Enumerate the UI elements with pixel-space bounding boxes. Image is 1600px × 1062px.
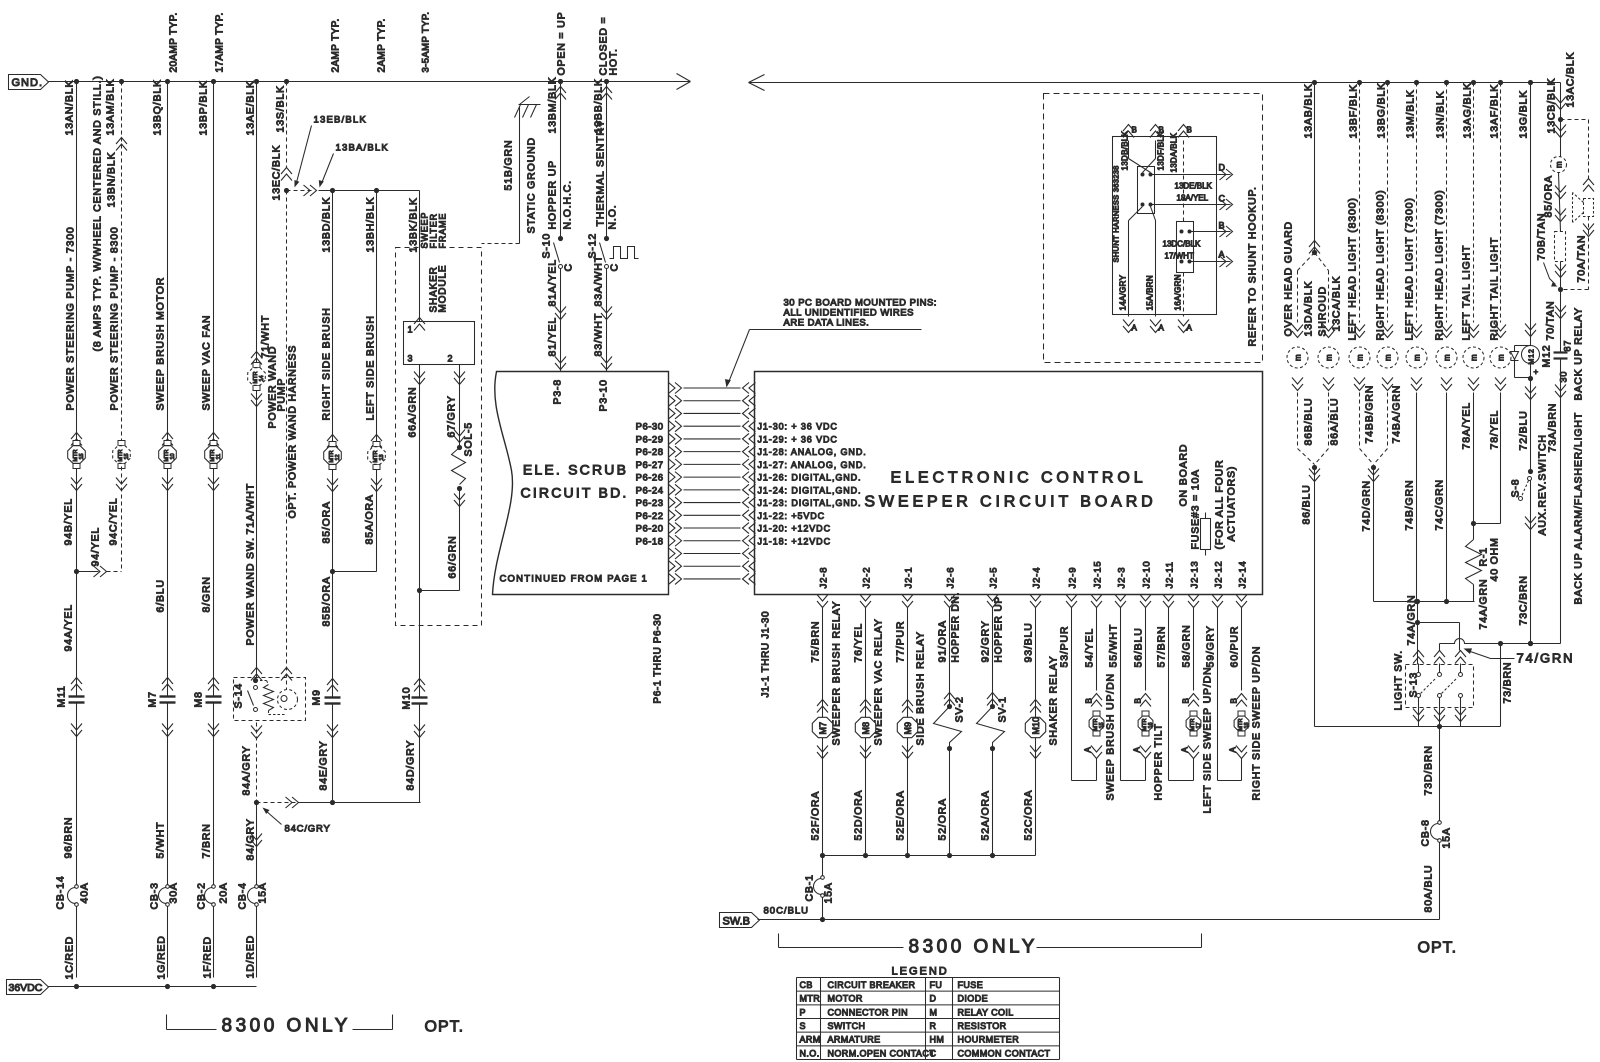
svg-text:J1-23: DIGITAL,GND.: J1-23: DIGITAL,GND. — [758, 498, 862, 508]
svg-text:m: m — [1384, 354, 1393, 361]
svg-text:13DB/BLK: 13DB/BLK — [1121, 130, 1130, 170]
svg-text:13N/BLK: 13N/BLK — [1435, 91, 1447, 139]
svg-text:CB-2: CB-2 — [196, 882, 208, 909]
svg-text:B: B — [1132, 126, 1137, 135]
svg-text:73D/BRN: 73D/BRN — [1423, 745, 1435, 795]
svg-text:13DF/BLK: 13DF/BLK — [1157, 131, 1166, 171]
svg-text:SOL-5: SOL-5 — [463, 422, 475, 457]
svg-text:74BA/GRN: 74BA/GRN — [1391, 385, 1403, 444]
svg-text:S-14: S-14 — [233, 683, 245, 709]
svg-text:A: A — [1219, 250, 1225, 260]
svg-text:15A: 15A — [257, 882, 269, 903]
svg-text:P6-18: P6-18 — [636, 536, 664, 547]
svg-text:(FOR ALL FOUR: (FOR ALL FOUR — [1214, 459, 1226, 549]
svg-text:13BG/BLK: 13BG/BLK — [1376, 82, 1388, 138]
svg-text:M7: M7 — [818, 722, 828, 735]
svg-text:C: C — [930, 1048, 937, 1058]
svg-text:56/BLU: 56/BLU — [1133, 627, 1145, 667]
svg-text:B: B — [1219, 221, 1225, 231]
svg-text:81A/YEL: 81A/YEL — [547, 259, 559, 306]
svg-text:A: A — [1187, 324, 1193, 333]
svg-text:RIGHT SIDE SWEEP UP/DN: RIGHT SIDE SWEEP UP/DN — [1251, 646, 1263, 801]
svg-text:HOPPER UP: HOPPER UP — [994, 596, 1005, 663]
svg-text:J1-1 THRU J1-30: J1-1 THRU J1-30 — [761, 611, 772, 698]
svg-text:13DC/BLK: 13DC/BLK — [1163, 240, 1201, 249]
svg-text:13DE/BLK: 13DE/BLK — [1175, 182, 1213, 191]
svg-text:+: + — [1534, 368, 1539, 377]
svg-text:NORM.OPEN CONTACT: NORM.OPEN CONTACT — [828, 1048, 936, 1058]
svg-text:R: R — [930, 1021, 937, 1031]
svg-text:16A/GRN: 16A/GRN — [1174, 274, 1183, 310]
svg-text:13EB/BLK: 13EB/BLK — [314, 115, 367, 126]
svg-text:J2-3: J2-3 — [1117, 567, 1128, 589]
svg-text:CONNECTOR PIN: CONNECTOR PIN — [828, 1007, 909, 1017]
svg-text:80C/BLU: 80C/BLU — [764, 906, 810, 917]
svg-text:P: P — [800, 1007, 806, 1017]
svg-text:30A: 30A — [168, 882, 180, 903]
svg-text:J1-29: + 36 VDC: J1-29: + 36 VDC — [758, 434, 838, 444]
svg-text:78A/YEL: 78A/YEL — [1461, 402, 1473, 449]
svg-text:B: B — [1230, 698, 1239, 703]
svg-text:OVER HEAD GUARD: OVER HEAD GUARD — [1283, 221, 1295, 336]
svg-text:70/TAN: 70/TAN — [1545, 301, 1557, 341]
svg-text:HM: HM — [930, 1035, 945, 1045]
svg-text:C: C — [563, 263, 575, 271]
svg-text:J2-2: J2-2 — [862, 567, 873, 589]
svg-text:m: m — [1325, 354, 1334, 361]
svg-text:18: 18 — [1244, 722, 1250, 728]
svg-text:S-10: S-10 — [541, 233, 553, 259]
svg-text:D: D — [930, 994, 937, 1004]
svg-text:13AG/BLK: 13AG/BLK — [1462, 82, 1474, 138]
svg-text:m: m — [1443, 354, 1452, 361]
svg-text:POWER STEERING PUMP - 7300: POWER STEERING PUMP - 7300 — [65, 226, 77, 410]
svg-text:13BK/BLK: 13BK/BLK — [408, 197, 420, 252]
svg-text:OPEN = UP: OPEN = UP — [556, 12, 568, 76]
svg-text:CB-14: CB-14 — [55, 875, 67, 909]
svg-text:93/BLU: 93/BLU — [1023, 622, 1035, 662]
svg-text:15A: 15A — [823, 882, 835, 903]
svg-text:ARMATURE: ARMATURE — [828, 1035, 881, 1045]
svg-text:HOT.: HOT. — [608, 48, 620, 75]
svg-text:FU: FU — [930, 980, 943, 990]
svg-text:13BA/BLK: 13BA/BLK — [336, 143, 389, 154]
svg-text:15: 15 — [124, 453, 130, 459]
svg-text:92/GRY: 92/GRY — [980, 620, 992, 662]
svg-text:m: m — [1413, 354, 1422, 361]
svg-text:OPT.: OPT. — [1418, 940, 1458, 957]
svg-text:HOPPER TILT: HOPPER TILT — [1153, 723, 1165, 800]
svg-text:m: m — [1497, 354, 1506, 361]
svg-text:71A/WHT: 71A/WHT — [245, 483, 257, 534]
svg-text:1F/RED: 1F/RED — [202, 936, 214, 978]
svg-text:CB: CB — [800, 980, 813, 990]
svg-text:J1-18: +12VDC: J1-18: +12VDC — [758, 536, 831, 546]
svg-text:DIODE: DIODE — [958, 994, 989, 1004]
svg-text:CB-8: CB-8 — [1420, 819, 1432, 846]
svg-text:P6-22: P6-22 — [636, 511, 664, 522]
svg-text:17AMP TYP.: 17AMP TYP. — [215, 12, 226, 72]
svg-text:M7: M7 — [147, 691, 159, 707]
svg-text:13BN/BLK: 13BN/BLK — [106, 152, 118, 208]
svg-text:2: 2 — [447, 354, 452, 364]
svg-text:J1-28: ANALOG, GND.: J1-28: ANALOG, GND. — [758, 447, 867, 457]
svg-text:LEFT SIDE SWEEP UP/DN: LEFT SIDE SWEEP UP/DN — [1202, 667, 1214, 814]
svg-text:83A/WHT: 83A/WHT — [593, 255, 605, 306]
svg-text:J1-26: DIGITAL,GND.: J1-26: DIGITAL,GND. — [758, 473, 862, 483]
svg-text:J2-13: J2-13 — [1190, 560, 1201, 588]
svg-text:66A/GRN: 66A/GRN — [407, 387, 419, 438]
svg-text:J1-20: +12VDC: J1-20: +12VDC — [758, 524, 831, 534]
svg-text:13AC/BLK: 13AC/BLK — [1565, 52, 1577, 108]
svg-text:J2-9: J2-9 — [1068, 567, 1079, 589]
svg-text:84A/GRY: 84A/GRY — [241, 745, 253, 795]
svg-text:52A/ORA: 52A/ORA — [980, 790, 992, 840]
svg-text:N.O.H.C.: N.O.H.C. — [562, 180, 574, 229]
svg-text:M12: M12 — [1541, 345, 1553, 368]
svg-text:SWITCH: SWITCH — [828, 1021, 866, 1031]
svg-text:74A/GRN: 74A/GRN — [1478, 579, 1490, 630]
svg-text:53/PUR: 53/PUR — [1059, 626, 1071, 668]
svg-text:J2-8: J2-8 — [819, 567, 830, 589]
svg-text:J1-30: + 36 VDC: J1-30: + 36 VDC — [758, 422, 838, 432]
svg-text:52F/ORA: 52F/ORA — [810, 791, 822, 841]
svg-text:SWEEPER CIRCUIT BOARD: SWEEPER CIRCUIT BOARD — [864, 494, 1156, 511]
svg-text:1G/RED: 1G/RED — [156, 935, 168, 979]
svg-text:P3-10: P3-10 — [598, 379, 610, 411]
svg-text:HOPPER DN.: HOPPER DN. — [951, 592, 962, 663]
svg-text:STATIC GROUND: STATIC GROUND — [526, 137, 538, 233]
svg-text:75/BRN: 75/BRN — [810, 621, 822, 663]
svg-text:A: A — [1181, 747, 1190, 753]
svg-text:OPT.: OPT. — [425, 1019, 465, 1036]
svg-text:78/YEL: 78/YEL — [1489, 410, 1501, 450]
svg-text:J1-27: ANALOG, GND.: J1-27: ANALOG, GND. — [758, 460, 867, 470]
svg-text:J2-12: J2-12 — [1214, 560, 1225, 588]
svg-text:CB-1: CB-1 — [804, 874, 816, 901]
svg-text:LEFT TAIL LIGHT: LEFT TAIL LIGHT — [1461, 245, 1473, 341]
svg-text:S-8: S-8 — [1510, 479, 1522, 498]
svg-text:SWEEP BRUSH MOTOR: SWEEP BRUSH MOTOR — [155, 277, 167, 411]
svg-text:P6-1 THRU P6-30: P6-1 THRU P6-30 — [653, 614, 664, 704]
svg-text:P6-20: P6-20 — [636, 524, 664, 535]
svg-text:J2-14: J2-14 — [1238, 560, 1249, 588]
svg-text:m: m — [1356, 354, 1365, 361]
svg-text:J2-15: J2-15 — [1093, 560, 1104, 588]
svg-text:8/GRN: 8/GRN — [201, 576, 213, 612]
svg-text:S: S — [800, 1021, 806, 1031]
svg-text:81/YEL: 81/YEL — [547, 317, 559, 357]
svg-text:13DA/BLK: 13DA/BLK — [1303, 281, 1315, 337]
svg-text:MODULE: MODULE — [438, 265, 449, 313]
svg-text:13DA/BLK: 13DA/BLK — [1170, 132, 1179, 172]
svg-text:13BH/BLK: 13BH/BLK — [365, 197, 377, 253]
svg-text:54/YEL: 54/YEL — [1084, 628, 1096, 668]
svg-text:CB-3: CB-3 — [149, 882, 161, 909]
svg-text:13M/BLK: 13M/BLK — [1405, 89, 1417, 138]
svg-text:OPT. POWER WAND HARNESS: OPT. POWER WAND HARNESS — [287, 345, 299, 519]
svg-text:36VDC: 36VDC — [9, 982, 43, 994]
svg-text:13AF/BLK: 13AF/BLK — [1489, 84, 1501, 139]
svg-text:RIGHT SIDE BRUSH: RIGHT SIDE BRUSH — [321, 307, 333, 420]
svg-text:SWEEP BRUSH UP/DN: SWEEP BRUSH UP/DN — [1105, 673, 1117, 800]
svg-text:1D/RED: 1D/RED — [245, 935, 257, 979]
svg-text:40 OHM: 40 OHM — [1489, 537, 1501, 581]
svg-text:18A/YEL: 18A/YEL — [1177, 194, 1209, 203]
svg-text:84/GRY: 84/GRY — [245, 818, 257, 860]
svg-text:15: 15 — [79, 453, 85, 459]
svg-text:M11: M11 — [56, 685, 68, 707]
svg-text:A: A — [1133, 747, 1142, 753]
svg-text:74D/GRN: 74D/GRN — [1361, 480, 1373, 531]
svg-text:POWER STEERING PUMP - 8300: POWER STEERING PUMP - 8300 — [109, 226, 121, 410]
svg-text:J2-5: J2-5 — [989, 567, 1000, 589]
svg-text:A: A — [1132, 324, 1138, 333]
svg-text:B: B — [1134, 698, 1143, 703]
svg-text:MOTOR: MOTOR — [828, 994, 863, 1004]
svg-text:94B/YEL: 94B/YEL — [63, 498, 75, 545]
svg-text:ARE DATA LINES.: ARE DATA LINES. — [784, 318, 870, 329]
svg-text:2AMP TYP.: 2AMP TYP. — [377, 18, 388, 72]
svg-text:HOPPER UP: HOPPER UP — [547, 160, 559, 230]
svg-text:15A: 15A — [1441, 827, 1453, 848]
svg-text:13G/BLK: 13G/BLK — [1518, 90, 1530, 139]
svg-text:13AN/BLK: 13AN/BLK — [64, 80, 76, 136]
svg-text:S-12: S-12 — [587, 233, 599, 259]
svg-text:M9: M9 — [903, 722, 913, 735]
svg-text:10: 10 — [170, 453, 176, 459]
svg-text:13BD/BLK: 13BD/BLK — [321, 197, 333, 253]
svg-text:85/ORA: 85/ORA — [321, 501, 333, 543]
svg-text:52D/ORA: 52D/ORA — [853, 790, 865, 841]
svg-text:FUSE#3 = 10A: FUSE#3 = 10A — [1190, 469, 1202, 550]
svg-text:J2-6: J2-6 — [946, 567, 957, 589]
svg-text:SWEEP VAC FAN: SWEEP VAC FAN — [201, 315, 213, 411]
svg-text:52E/ORA: 52E/ORA — [895, 790, 907, 840]
svg-text:LEGEND: LEGEND — [892, 966, 949, 978]
svg-text:(8 AMPS TYP. W/WHEEL CENTERED: (8 AMPS TYP. W/WHEEL CENTERED AND STILL.… — [92, 75, 104, 351]
svg-text:C: C — [609, 263, 621, 271]
svg-text:6/BLU: 6/BLU — [155, 579, 167, 612]
svg-text:85/ORA: 85/ORA — [1543, 175, 1555, 217]
svg-text:THERMAL SENTRY: THERMAL SENTRY — [595, 120, 607, 227]
svg-text:P3-8: P3-8 — [552, 379, 564, 405]
svg-text:84E/GRY: 84E/GRY — [318, 740, 330, 790]
svg-text:RIGHT HEAD LIGHT (8300): RIGHT HEAD LIGHT (8300) — [1375, 189, 1387, 340]
svg-text:BACK UP RELAY: BACK UP RELAY — [1573, 307, 1585, 401]
svg-text:84D/GRY: 84D/GRY — [405, 740, 417, 791]
svg-text:C: C — [1219, 194, 1226, 204]
svg-text:96/BRN: 96/BRN — [63, 817, 75, 859]
svg-text:74BB/GRN: 74BB/GRN — [1364, 385, 1376, 444]
svg-text:85A/ORA: 85A/ORA — [364, 494, 376, 544]
svg-text:HOURMETER: HOURMETER — [958, 1035, 1020, 1045]
svg-text:83/WHT: 83/WHT — [593, 313, 605, 357]
svg-text:J1-22: +5VDC: J1-22: +5VDC — [758, 511, 826, 521]
svg-text:LEFT SIDE BRUSH: LEFT SIDE BRUSH — [365, 315, 377, 420]
svg-text:J2-4: J2-4 — [1032, 567, 1043, 589]
svg-text:13BF/BLK: 13BF/BLK — [1348, 84, 1360, 139]
svg-text:M8: M8 — [193, 691, 205, 707]
svg-text:13AB/BLK: 13AB/BLK — [1303, 83, 1315, 138]
svg-text:86B/BLU: 86B/BLU — [1303, 398, 1315, 446]
svg-text:60/PUR: 60/PUR — [1229, 626, 1241, 668]
svg-text:P6-29: P6-29 — [636, 434, 664, 445]
svg-text:57/BRN: 57/BRN — [1156, 626, 1168, 668]
svg-text:86A/BLU: 86A/BLU — [1329, 398, 1341, 446]
svg-text:77/PUR: 77/PUR — [895, 621, 907, 663]
svg-text:N.O.: N.O. — [607, 205, 619, 230]
svg-text:58/GRN: 58/GRN — [1181, 624, 1193, 667]
svg-text:12: 12 — [335, 454, 341, 460]
svg-text:1C/RED: 1C/RED — [64, 936, 76, 980]
svg-text:GND.: GND. — [12, 77, 44, 89]
svg-text:SV-2: SV-2 — [954, 696, 966, 722]
svg-text:J1-24: DIGITAL,GND.: J1-24: DIGITAL,GND. — [758, 485, 862, 495]
svg-text:P6-28: P6-28 — [636, 447, 664, 458]
svg-text:13S/BLK: 13S/BLK — [275, 85, 287, 132]
svg-text:FRAME: FRAME — [438, 213, 448, 249]
svg-text:70A/TAN: 70A/TAN — [1576, 235, 1588, 283]
svg-text:M: M — [930, 1007, 938, 1017]
svg-text:CIRCUIT BD.: CIRCUIT BD. — [521, 485, 629, 501]
svg-text:FUSE: FUSE — [958, 980, 984, 990]
svg-text:N.O.: N.O. — [800, 1048, 820, 1058]
svg-text:14: 14 — [259, 375, 265, 381]
svg-text:74B/GRN: 74B/GRN — [1404, 480, 1416, 531]
svg-text:73A/BRN: 73A/BRN — [1547, 403, 1559, 453]
svg-text:94/YEL: 94/YEL — [90, 527, 102, 567]
svg-text:94C/YEL: 94C/YEL — [108, 498, 120, 546]
svg-text:SW.B: SW.B — [723, 916, 751, 928]
svg-text:B: B — [1187, 126, 1192, 135]
svg-text:14A/GRY: 14A/GRY — [1119, 274, 1128, 310]
svg-text:73C/BRN: 73C/BRN — [1518, 575, 1530, 625]
svg-text:RELAY COIL: RELAY COIL — [958, 1007, 1014, 1017]
svg-text:74A/GRN: 74A/GRN — [1406, 595, 1418, 646]
svg-text:ELECTRONIC CONTROL: ELECTRONIC CONTROL — [891, 470, 1147, 487]
svg-text:52/ORA: 52/ORA — [937, 798, 949, 840]
svg-text:CB-4: CB-4 — [237, 882, 249, 909]
svg-text:13BQ/BLK: 13BQ/BLK — [152, 79, 164, 135]
svg-text:2AMP TYP.: 2AMP TYP. — [331, 18, 342, 72]
svg-text:91/ORA: 91/ORA — [937, 620, 949, 662]
svg-text:M10: M10 — [401, 687, 413, 710]
svg-text:17/WHT: 17/WHT — [1165, 252, 1194, 261]
svg-text:D: D — [1219, 163, 1226, 173]
svg-text:ACTUATORS): ACTUATORS) — [1226, 466, 1238, 542]
svg-text:POWER WAND SW.: POWER WAND SW. — [245, 537, 257, 645]
svg-text:76/YEL: 76/YEL — [853, 623, 865, 663]
svg-text:84C/GRY: 84C/GRY — [285, 824, 331, 835]
svg-text:MTR: MTR — [800, 994, 821, 1004]
svg-text:B: B — [1182, 698, 1191, 703]
svg-text:CONTINUED FROM PAGE 1: CONTINUED FROM PAGE 1 — [500, 574, 649, 585]
svg-text:SHAKER RELAY: SHAKER RELAY — [1048, 656, 1060, 746]
svg-text:A: A — [1159, 324, 1165, 333]
svg-text:P6-27: P6-27 — [636, 460, 664, 471]
svg-text:M10: M10 — [1031, 717, 1041, 735]
svg-text:m: m — [1294, 354, 1303, 361]
svg-text:M8: M8 — [861, 722, 871, 735]
svg-text:8300 ONLY: 8300 ONLY — [222, 1016, 351, 1037]
svg-text:A: A — [1084, 747, 1093, 753]
svg-text:74/GRN: 74/GRN — [1517, 651, 1575, 666]
svg-text:SV-1: SV-1 — [997, 696, 1009, 722]
svg-text:m: m — [1555, 161, 1564, 168]
svg-text:13AM/BLK: 13AM/BLK — [105, 79, 117, 136]
svg-text:59/GRY: 59/GRY — [1205, 625, 1217, 667]
svg-text:ELE. SCRUB: ELE. SCRUB — [523, 462, 628, 478]
svg-text:m: m — [1470, 354, 1479, 361]
svg-text:LIGHT SW.: LIGHT SW. — [1393, 650, 1405, 711]
svg-text:LEFT HEAD LIGHT (7300): LEFT HEAD LIGHT (7300) — [1404, 197, 1416, 340]
svg-text:51B/GRN: 51B/GRN — [503, 140, 515, 191]
svg-text:J2-11: J2-11 — [1165, 561, 1176, 588]
svg-text:BACK UP ALARM/FLASHER/LIGHT: BACK UP ALARM/FLASHER/LIGHT — [1573, 412, 1585, 605]
svg-text:86/BLU: 86/BLU — [1301, 484, 1313, 524]
svg-text:P6-24: P6-24 — [636, 485, 664, 496]
svg-text:13BP/BLK: 13BP/BLK — [198, 80, 210, 135]
svg-text:CIRCUIT BREAKER: CIRCUIT BREAKER — [828, 980, 916, 990]
svg-text:55/WHT: 55/WHT — [1108, 624, 1120, 668]
svg-text:P6-23: P6-23 — [636, 498, 664, 509]
svg-text:RESISTOR: RESISTOR — [958, 1021, 1007, 1031]
svg-text:73/BRN: 73/BRN — [1502, 662, 1514, 704]
svg-text:SHUNT HARNESS 363238: SHUNT HARNESS 363238 — [1112, 165, 1121, 262]
svg-text:72/BLU: 72/BLU — [1518, 410, 1530, 450]
svg-text:66/GRN: 66/GRN — [447, 535, 459, 578]
svg-text:94A/YEL: 94A/YEL — [63, 604, 75, 651]
svg-text:13AE/BLK: 13AE/BLK — [245, 80, 257, 135]
svg-text:A: A — [1229, 747, 1238, 753]
svg-text:3-5AMP TYP.: 3-5AMP TYP. — [421, 12, 432, 73]
svg-text:5/WHT: 5/WHT — [155, 822, 167, 859]
svg-text:7/BRN: 7/BRN — [201, 823, 213, 858]
svg-text:RIGHT HEAD LIGHT (7300): RIGHT HEAD LIGHT (7300) — [1434, 189, 1446, 340]
svg-text:74C/GRN: 74C/GRN — [1434, 479, 1446, 530]
svg-text:LEFT HEAD LIGHT (8300): LEFT HEAD LIGHT (8300) — [1347, 197, 1359, 340]
svg-text:3: 3 — [407, 354, 412, 364]
svg-text:P6-30: P6-30 — [636, 422, 664, 433]
svg-text:70B/TAN: 70B/TAN — [1536, 213, 1548, 261]
svg-text:8300 ONLY: 8300 ONLY — [909, 937, 1038, 958]
svg-text:87: 87 — [1563, 340, 1573, 352]
svg-text:M9: M9 — [311, 689, 323, 705]
svg-text:13BM/BLK: 13BM/BLK — [547, 77, 559, 134]
svg-text:40A: 40A — [79, 882, 91, 903]
svg-text:11: 11 — [216, 454, 222, 460]
svg-text:COMMON CONTACT: COMMON CONTACT — [958, 1048, 1051, 1058]
svg-text:13CA/BLK: 13CA/BLK — [1331, 276, 1343, 332]
svg-text:20AMP TYP.: 20AMP TYP. — [169, 12, 180, 72]
svg-text:ON BOARD: ON BOARD — [1178, 444, 1190, 507]
svg-text:REFER TO SHUNT HOOKUP.: REFER TO SHUNT HOOKUP. — [1247, 186, 1259, 346]
svg-text:J2-10: J2-10 — [1142, 560, 1153, 588]
svg-text:15A/BRN: 15A/BRN — [1146, 275, 1155, 310]
svg-text:52C/ORA: 52C/ORA — [1023, 790, 1035, 841]
svg-text:RIGHT TAIL LIGHT: RIGHT TAIL LIGHT — [1489, 237, 1501, 341]
svg-text:ARM: ARM — [800, 1035, 821, 1045]
svg-text:M12: M12 — [1529, 348, 1536, 364]
svg-text:80A/BLU: 80A/BLU — [1423, 865, 1435, 913]
svg-text:13: 13 — [379, 454, 385, 460]
svg-text:1: 1 — [407, 325, 412, 335]
svg-text:85B/ORA: 85B/ORA — [321, 576, 333, 626]
svg-text:P6-26: P6-26 — [636, 473, 664, 484]
svg-text:20A: 20A — [218, 882, 230, 903]
svg-text:B: B — [1085, 698, 1094, 703]
